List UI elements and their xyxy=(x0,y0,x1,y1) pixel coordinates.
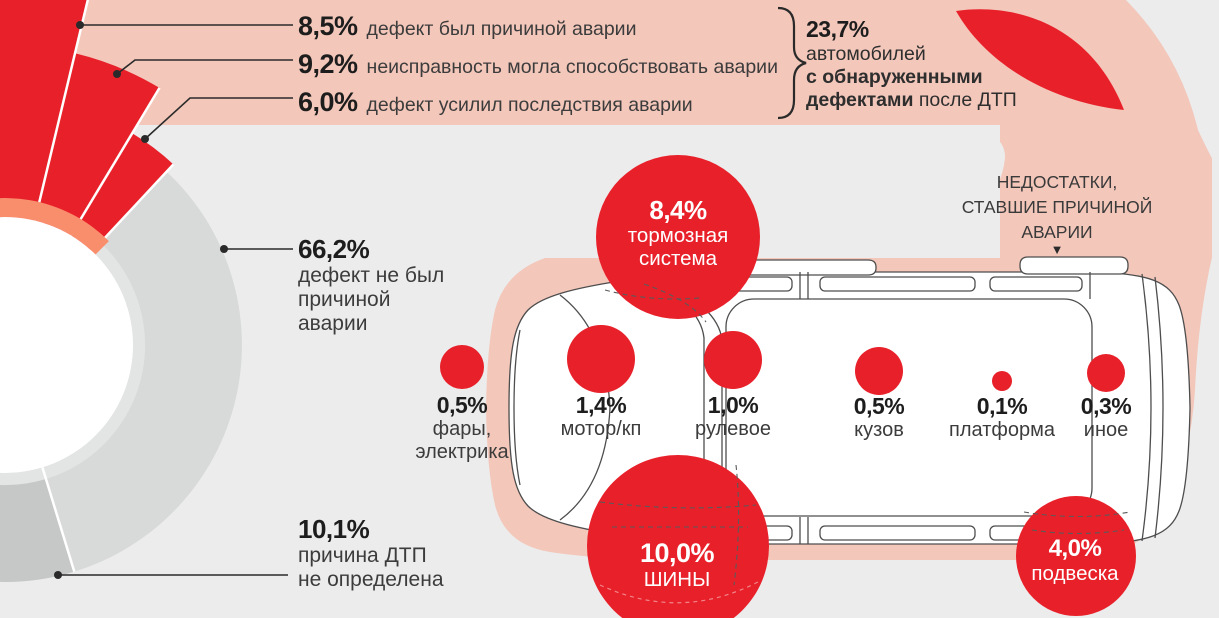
defect-other-line1: иное xyxy=(1084,419,1128,441)
callout-contrib-label: неисправность могла способствовать авари… xyxy=(367,56,778,79)
defect-steering-value: 1,0% xyxy=(695,392,771,418)
defect-tires-value: 10,0% xyxy=(640,538,714,568)
callout-not-cause-line3: аварии xyxy=(298,312,367,335)
defect-circle-motor xyxy=(567,325,635,393)
car-window xyxy=(990,277,1082,291)
callout-undetermined: 10,1% причина ДТП не определена xyxy=(298,514,444,592)
right-header-line1: НЕДОСТАТКИ, xyxy=(997,172,1118,192)
summary-value: 23,7% xyxy=(806,16,1017,43)
defect-label-other: 0,3% иное xyxy=(1081,393,1131,442)
defect-label-lights: 0,5% фары, электрика xyxy=(415,392,508,464)
defect-suspension-value: 4,0% xyxy=(1031,535,1118,562)
right-header-line3: АВАРИИ xyxy=(1021,222,1092,242)
right-header: НЕДОСТАТКИ, СТАВШИЕ ПРИЧИНОЙ АВАРИИ xyxy=(940,170,1174,245)
defect-tires-line1: ШИНЫ xyxy=(644,568,710,591)
callout-undetermined-line1: причина ДТП xyxy=(298,544,427,567)
right-header-line2: СТАВШИЕ ПРИЧИНОЙ xyxy=(962,197,1153,217)
infographic-car-defects: 8,5% дефект был причиной аварии 9,2% неи… xyxy=(0,0,1219,618)
car-window xyxy=(820,277,975,291)
summary-line3-rest: после ДТП xyxy=(913,89,1016,111)
callout-undetermined-line2: не определена xyxy=(298,568,444,591)
callout-not-cause-line1: дефект не был xyxy=(298,264,444,287)
summary-line2: с обнаруженными xyxy=(806,66,983,88)
defect-platform-value: 0,1% xyxy=(949,393,1055,419)
defect-motor-line1: мотор/кп xyxy=(561,418,642,440)
leader-dot xyxy=(113,70,121,78)
defect-label-motor: 1,4% мотор/кп xyxy=(561,392,642,441)
car-roof-rail-rear xyxy=(1020,257,1128,274)
callout-contrib: 9,2% неисправность могла способствовать … xyxy=(298,49,778,80)
callout-undetermined-value: 10,1% xyxy=(298,514,444,544)
callout-cause-value: 8,5% xyxy=(298,11,358,42)
car-window xyxy=(820,526,975,540)
defect-brake-value: 8,4% xyxy=(628,196,728,224)
callout-not-cause: 66,2% дефект не был причиной аварии xyxy=(298,234,444,336)
defect-circle-other xyxy=(1087,354,1125,392)
callout-aggravated-value: 6,0% xyxy=(298,87,358,118)
defect-other-value: 0,3% xyxy=(1081,393,1131,419)
defect-body-line1: кузов xyxy=(854,419,904,441)
defect-circle-steering xyxy=(704,331,762,389)
defect-circle-body xyxy=(855,347,903,395)
callout-cause-label: дефект был причиной аварии xyxy=(367,18,637,41)
defect-body-value: 0,5% xyxy=(854,393,904,419)
leader-dot xyxy=(141,135,149,143)
defect-brake-line1: тормозная xyxy=(628,224,728,247)
defect-label-steering: 1,0% рулевое xyxy=(695,392,771,441)
defect-label-platform: 0,1% платформа xyxy=(949,393,1055,442)
callout-not-cause-value: 66,2% xyxy=(298,234,444,264)
defect-label-brake: 8,4% тормозная система xyxy=(628,196,728,270)
leader-dot xyxy=(220,245,228,253)
callout-cause: 8,5% дефект был причиной аварии xyxy=(298,11,636,42)
defect-lights-line1: фары, xyxy=(433,418,492,440)
defect-motor-value: 1,4% xyxy=(561,392,642,418)
callout-not-cause-line2: причиной xyxy=(298,288,390,311)
defect-platform-line1: платформа xyxy=(949,419,1055,441)
defect-label-tires: 10,0% ШИНЫ xyxy=(640,538,714,591)
callout-aggravated: 6,0% дефект усилил последствия аварии xyxy=(298,87,693,118)
callout-contrib-value: 9,2% xyxy=(298,49,358,80)
leader-dot xyxy=(76,21,84,29)
leader-dot xyxy=(54,571,62,579)
defect-lights-line2: электрика xyxy=(415,441,508,463)
defect-label-body: 0,5% кузов xyxy=(854,393,904,442)
summary-block: 23,7% автомобилей с обнаруженными дефект… xyxy=(806,16,1017,112)
defect-circle-platform xyxy=(992,371,1012,391)
defect-steering-line1: рулевое xyxy=(695,418,771,440)
defect-suspension-line1: подвеска xyxy=(1031,562,1118,585)
callout-aggravated-label: дефект усилил последствия аварии xyxy=(367,94,693,117)
summary-line1: автомобилей xyxy=(806,43,926,65)
defect-lights-value: 0,5% xyxy=(415,392,508,418)
defect-brake-line2: система xyxy=(639,247,717,270)
defect-label-suspension: 4,0% подвеска xyxy=(1031,535,1118,585)
summary-line3-bold: дефектами xyxy=(806,89,913,111)
defect-circle-lights xyxy=(440,345,484,389)
down-arrow-icon: ▼ xyxy=(940,243,1174,256)
